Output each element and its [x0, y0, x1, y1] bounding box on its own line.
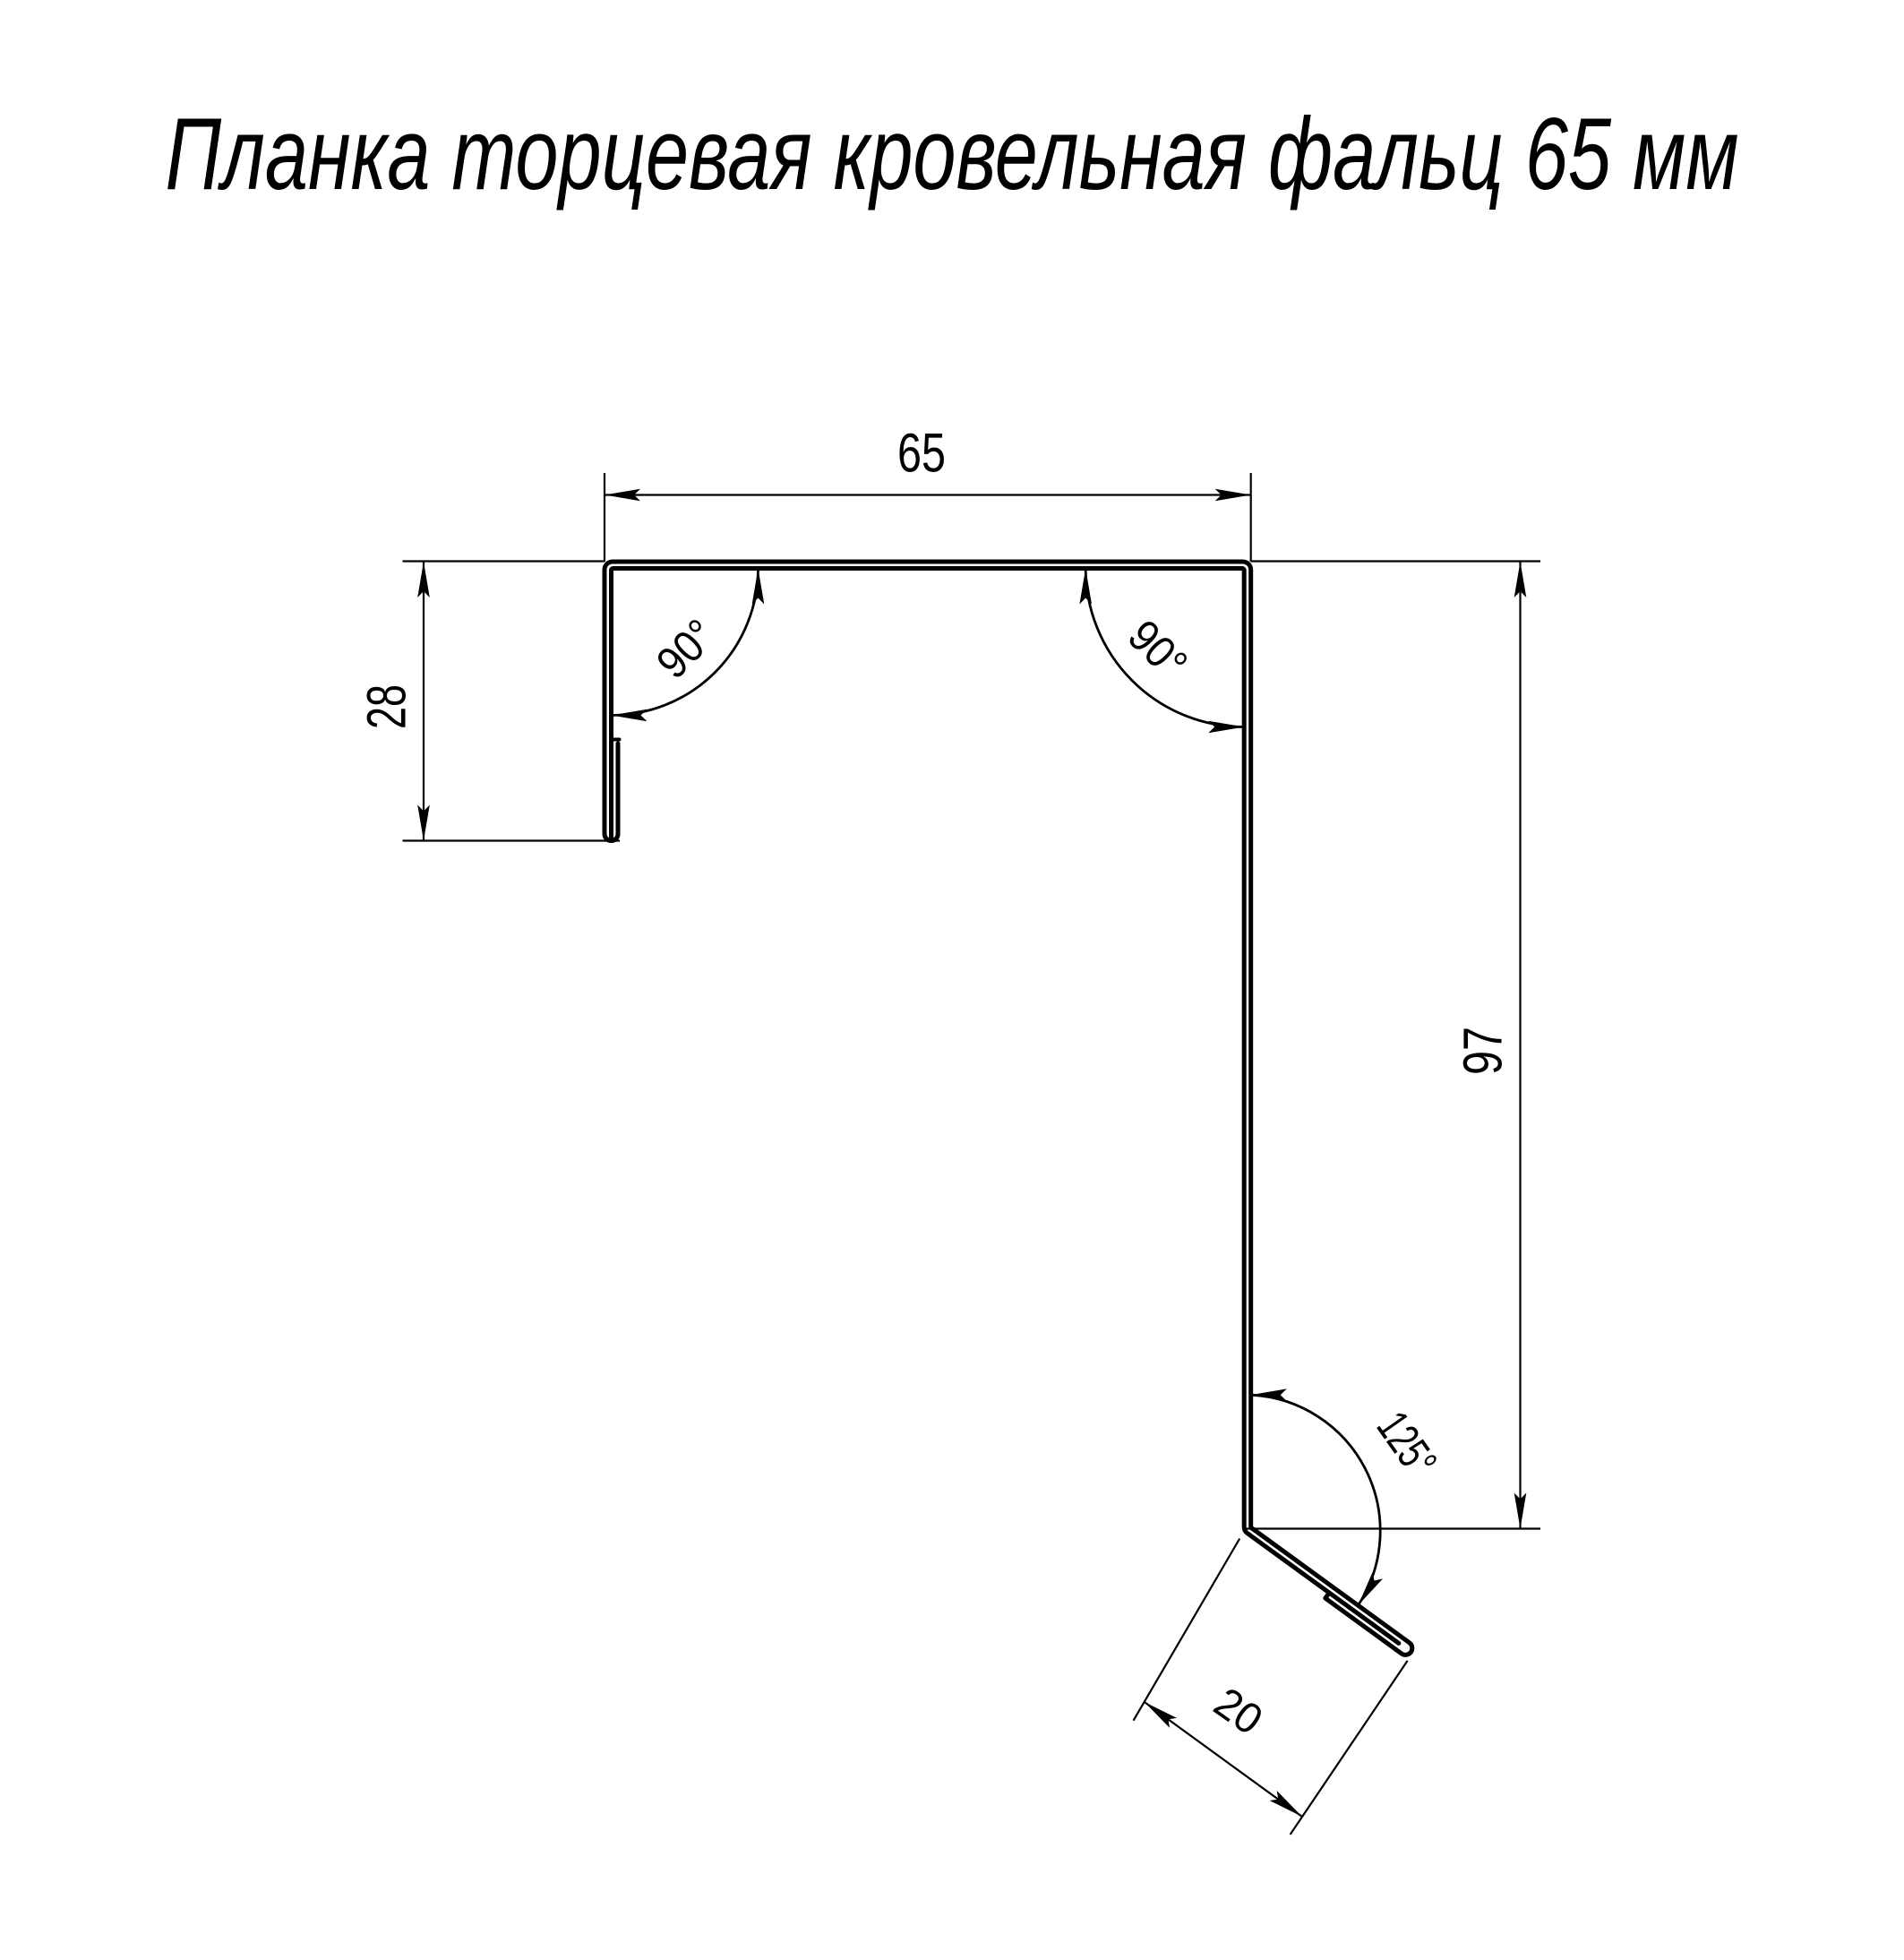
svg-text:Планка торцевая кровельная фал: Планка торцевая кровельная фальц 65 мм [166, 98, 1739, 211]
svg-text:28: 28 [356, 684, 417, 729]
svg-text:97: 97 [1453, 1027, 1514, 1075]
svg-text:65: 65 [897, 423, 946, 484]
